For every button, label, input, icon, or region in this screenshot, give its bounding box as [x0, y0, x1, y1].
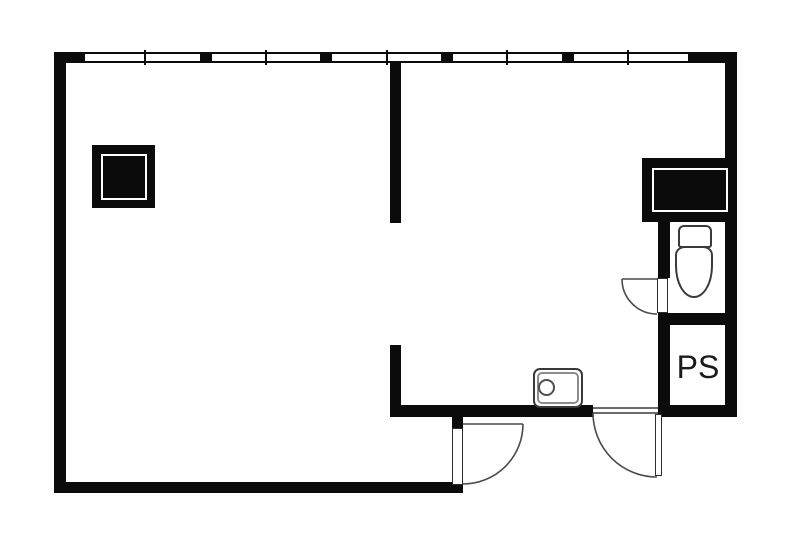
outer-wall-bottom	[54, 482, 463, 493]
service-entry-door-swing-arc	[593, 413, 657, 477]
entry-threshold-line-top	[593, 407, 658, 409]
outer-wall-left	[54, 52, 66, 493]
outer-wall-right	[725, 52, 737, 417]
service-shaft	[642, 158, 737, 222]
entry-threshold-line-bottom	[593, 412, 658, 414]
service-entry-door-leaf	[655, 414, 662, 476]
floor-plan: PS	[0, 0, 787, 538]
toilet-tank	[678, 225, 712, 248]
window-mullion-3	[441, 52, 453, 63]
entry-door-leaf	[452, 428, 463, 485]
column-inset-line	[101, 154, 147, 200]
window-mullion-2	[320, 52, 332, 63]
window-tick-3	[386, 50, 388, 65]
wc-ps-wall-lower	[658, 313, 670, 417]
entry-door-swing-arc	[463, 424, 523, 484]
partition-wall-upper	[390, 62, 401, 223]
wc-ps-divider-wall	[658, 313, 737, 325]
window-tick-1	[144, 50, 146, 65]
sink-drain-icon	[538, 379, 555, 396]
service-shaft-inset-line	[652, 168, 728, 212]
wc-wall-upper	[658, 222, 670, 278]
window-mullion-4	[562, 52, 574, 63]
ps-room-label: PS	[670, 350, 726, 384]
window-tick-2	[265, 50, 267, 65]
window-mullion-1	[200, 52, 212, 63]
window-tick-4	[506, 50, 508, 65]
entry-door-stub	[452, 417, 463, 428]
window-tick-5	[627, 50, 629, 65]
wc-door-swing-arc	[622, 279, 657, 314]
wc-door-leaf	[657, 278, 668, 313]
toilet-bowl	[675, 246, 713, 298]
column	[92, 145, 155, 208]
